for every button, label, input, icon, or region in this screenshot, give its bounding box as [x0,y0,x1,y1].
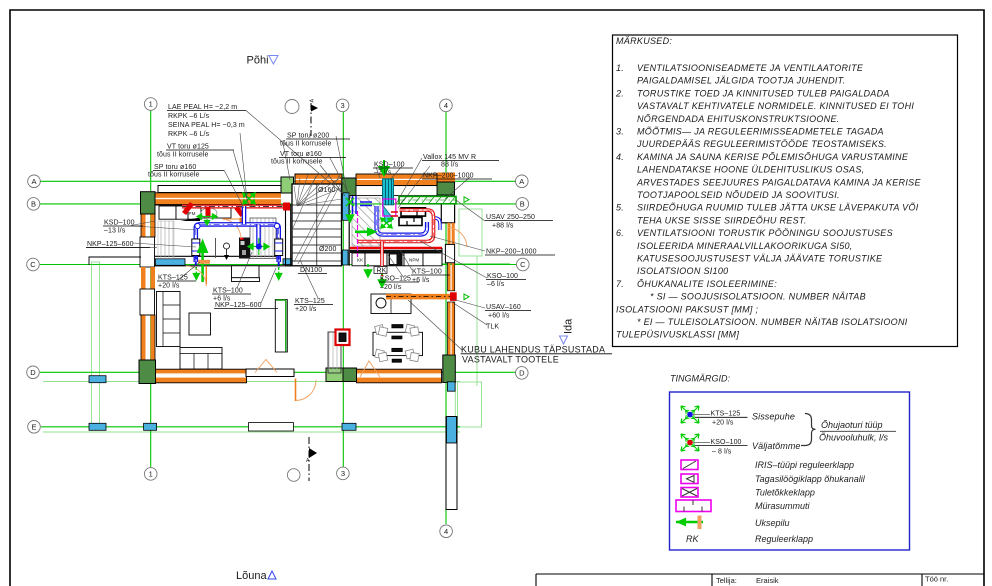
svg-text:TEHA UKSE SISSE SIIRDEÕHU REST: TEHA UKSE SISSE SIIRDEÕHU REST. [637,215,807,225]
svg-text:KTS–100: KTS–100 [412,269,442,276]
svg-text:Õhujaoturi tüüp: Õhujaoturi tüüp [821,420,883,430]
svg-text:KK: KK [357,258,364,263]
svg-text:* EI — TULEISOLATSIOON. NUMBER: * EI — TULEISOLATSIOON. NUMBER NÄITAB IS… [637,317,908,327]
svg-text:Töö nr.: Töö nr. [925,575,948,584]
svg-text:IRIS–tüüpi reguleerklapp: IRIS–tüüpi reguleerklapp [755,460,854,470]
svg-text:C: C [520,260,526,269]
svg-text:ÕHUKANALITE ISOLEERIMINE:: ÕHUKANALITE ISOLEERIMINE: [637,279,777,289]
svg-text:A: A [519,177,524,186]
svg-text:MÕÕTMIS— JA REGULEERIMISSEADME: MÕÕTMIS— JA REGULEERIMISSEADMETELE TAGAD… [637,127,884,137]
svg-text:RKPK –6 L/s: RKPK –6 L/s [168,113,210,120]
svg-text:NKP–200–1000: NKP–200–1000 [423,173,474,180]
svg-text:TULEPÜSIVUSKLASSI [MM]: TULEPÜSIVUSKLASSI [MM] [616,330,739,340]
svg-text:SIIRDEÕHUGA RUUMID TULEB JÄTTA: SIIRDEÕHUGA RUUMID TULEB JÄTTA UKSE LÄVE… [637,203,919,213]
svg-text:7.: 7. [616,279,624,289]
svg-text:1.: 1. [616,63,624,73]
svg-text:+20 l/s: +20 l/s [158,283,180,290]
svg-text:tõus II korrusele: tõus II korrusele [280,140,332,147]
svg-text:VT toru ø160: VT toru ø160 [280,151,322,158]
svg-text:–13 l/s: –13 l/s [104,228,126,235]
svg-text:5.: 5. [616,203,624,213]
svg-text:VASTAVALT KEHTIVATELE NORMIDEL: VASTAVALT KEHTIVATELE NORMIDELE. KINNITU… [637,101,914,111]
svg-text:+6 l/s: +6 l/s [412,277,430,284]
svg-text:KTS–100: KTS–100 [213,288,243,295]
svg-text:NKP–125–600: NKP–125–600 [215,302,262,309]
svg-text:Tagasilöögiklapp õhukanalil: Tagasilöögiklapp õhukanalil [755,474,866,484]
svg-text:88 l/s: 88 l/s [441,162,459,169]
svg-text:KATUSESOOJUSTUSEST VÄLJA JÄÄVA: KATUSESOOJUSTUSEST VÄLJA JÄÄVATE TORUSTI… [637,254,883,264]
svg-text:tõus II korrusele: tõus II korrusele [148,172,200,179]
svg-text:VT toru ø125: VT toru ø125 [167,144,209,151]
svg-text:Ø160: Ø160 [318,187,336,194]
svg-text:SEINA PEAL H= ~0,3 m: SEINA PEAL H= ~0,3 m [168,122,245,129]
svg-text:Uksepilu: Uksepilu [755,518,790,528]
svg-text:–20 l/s: –20 l/s [380,284,402,291]
svg-text:KTS–125: KTS–125 [295,298,325,305]
svg-text:RK: RK [686,534,699,544]
svg-text:+20 l/s: +20 l/s [295,306,317,313]
svg-text:Tuletõkkeklapp: Tuletõkkeklapp [755,488,815,498]
svg-text:PM: PM [189,211,196,216]
svg-text:4.: 4. [616,152,624,162]
svg-text:TORUSTIKE TOED JA KINNITUSED T: TORUSTIKE TOED JA KINNITUSED TULEB PAIGA… [637,88,890,98]
svg-text:KTS–125: KTS–125 [158,275,188,282]
svg-text:Reguleerklapp: Reguleerklapp [755,534,813,544]
svg-text:–7 l/s: –7 l/s [374,170,392,177]
svg-text:NKP–200–1000: NKP–200–1000 [486,249,537,256]
svg-text:–6 l/s: –6 l/s [487,281,505,288]
svg-text:A: A [31,177,36,186]
svg-text:KAMINA JA SAUNA KERISE PÕLEMIS: KAMINA JA SAUNA KERISE PÕLEMISÕHUGA VARU… [637,152,909,162]
svg-text:C: C [30,260,36,269]
svg-text:+60 l/s: +60 l/s [488,313,510,320]
svg-text:TLK: TLK [486,324,499,331]
svg-text:KSD–100: KSD–100 [104,220,135,227]
svg-text:NKP–125–600: NKP–125–600 [87,241,134,248]
svg-text:PAIGALDAMISEL JÄLGIDA TOOTJA J: PAIGALDAMISEL JÄLGIDA TOOTJA JUHENDIT. [637,76,845,86]
svg-text:KSO–125: KSO–125 [380,276,411,283]
svg-text:NPM: NPM [409,258,419,263]
svg-text:D: D [30,368,36,377]
svg-text:ISOLATSIOON SI100: ISOLATSIOON SI100 [637,266,728,276]
svg-text:VASTAVALT TOOTELE: VASTAVALT TOOTELE [462,354,559,364]
svg-text:* SI — SOOJUSISOLATSIOON. NUMB: * SI — SOOJUSISOLATSIOON. NUMBER NÄITAB [650,292,866,302]
svg-text:Õhuvooluhulk, l/s: Õhuvooluhulk, l/s [819,433,889,443]
svg-text:4: 4 [444,101,448,110]
svg-text:E: E [31,423,36,432]
svg-text:ARVESTADES SEEJUURES PAIGALDAT: ARVESTADES SEEJUURES PAIGALDATAVA KAMINA… [636,177,921,187]
svg-text:SP toru ø200: SP toru ø200 [287,133,329,140]
svg-text:3: 3 [341,101,345,110]
svg-text:USAV–160: USAV–160 [486,304,521,311]
svg-text:KSD–100: KSD–100 [374,162,405,169]
svg-text:Vallox 145 MV R: Vallox 145 MV R [423,154,476,161]
svg-text:Ida: Ida [563,318,575,334]
svg-text:TINGMÄRGID:: TINGMÄRGID: [670,374,730,384]
svg-text:ISOLEERIDA MINERAALVILLAKOORIK: ISOLEERIDA MINERAALVILLAKOORIKUGA SI50, [637,241,853,251]
svg-text:– 8 l/s: – 8 l/s [712,449,732,456]
svg-text:2.: 2. [615,88,624,98]
svg-text:Põhi: Põhi [247,55,269,67]
svg-text:VENTILATSIOONISEADMETE JA VENT: VENTILATSIOONISEADMETE JA VENTILAATORITE [637,63,864,73]
svg-text:RKPK –6 L/s: RKPK –6 L/s [168,131,210,138]
svg-text:Ø200: Ø200 [319,246,337,253]
svg-text:KSO–100: KSO–100 [711,439,742,446]
svg-text:B: B [31,200,36,209]
svg-text:KUBU LAHENDUS TÄPSUSTADA: KUBU LAHENDUS TÄPSUSTADA [461,344,605,354]
svg-text:Väljatõmme: Väljatõmme [752,441,801,451]
svg-text:tõus II korrusele: tõus II korrusele [157,151,209,158]
svg-text:KTS–125: KTS–125 [711,411,741,418]
svg-text:JUURDEPÄÄS REGULEERIMISTÖÖDE T: JUURDEPÄÄS REGULEERIMISTÖÖDE TEOSTAMISEK… [636,139,887,149]
svg-text:3: 3 [341,469,345,478]
svg-text:KSO–100: KSO–100 [487,273,518,280]
svg-text:Eraisik: Eraisik [756,576,779,585]
svg-text:LAHENDATAKSE HOONE ÜLDEHITUSLI: LAHENDATAKSE HOONE ÜLDEHITUSLIKUS OSAS, [637,165,864,175]
svg-text:MÄRKUSED:: MÄRKUSED: [616,36,672,46]
svg-text:4: 4 [444,527,448,536]
svg-text:NÕRGENDADA EHITUSKONSTRUKTSIOO: NÕRGENDADA EHITUSKONSTRUKTSIOONE. [637,114,840,124]
svg-text:+20 l/s: +20 l/s [712,420,734,427]
svg-text:VENTILATSIOONI TORUSTIK PÖÖNIN: VENTILATSIOONI TORUSTIK PÖÖNINGU SOOJUST… [637,228,893,238]
svg-text:ISOLATSIOONI PAKSUST [MM] ;: ISOLATSIOONI PAKSUST [MM] ; [616,304,758,314]
svg-text:Sissepuhe: Sissepuhe [752,412,795,422]
svg-text:Tellija:: Tellija: [716,576,737,585]
svg-text:B: B [520,200,525,209]
svg-text:3.: 3. [616,127,624,137]
svg-text:DN100: DN100 [300,267,322,274]
svg-text:RK: RK [377,268,387,275]
svg-text:D: D [519,369,525,378]
svg-text:Mürasummuti: Mürasummuti [755,501,811,511]
svg-text:USAV 250–250: USAV 250–250 [486,214,535,221]
svg-text:1: 1 [149,100,153,109]
svg-text:1: 1 [149,470,153,479]
svg-text:+88 l/s: +88 l/s [492,223,514,230]
svg-text:TOOTJAPOOLSEID NÕUDEID JA SOOV: TOOTJAPOOLSEID NÕUDEID JA SOOVITUSI. [637,190,840,200]
svg-text:6.: 6. [616,228,624,238]
svg-text:A: A [310,99,316,103]
svg-text:LAE PEAL H= ~2,2 m: LAE PEAL H= ~2,2 m [168,104,237,111]
svg-text:Lõuna: Lõuna [236,570,267,582]
svg-text:tõus II korrusele: tõus II korrusele [271,159,323,166]
svg-text:SP toru ø160: SP toru ø160 [154,164,196,171]
